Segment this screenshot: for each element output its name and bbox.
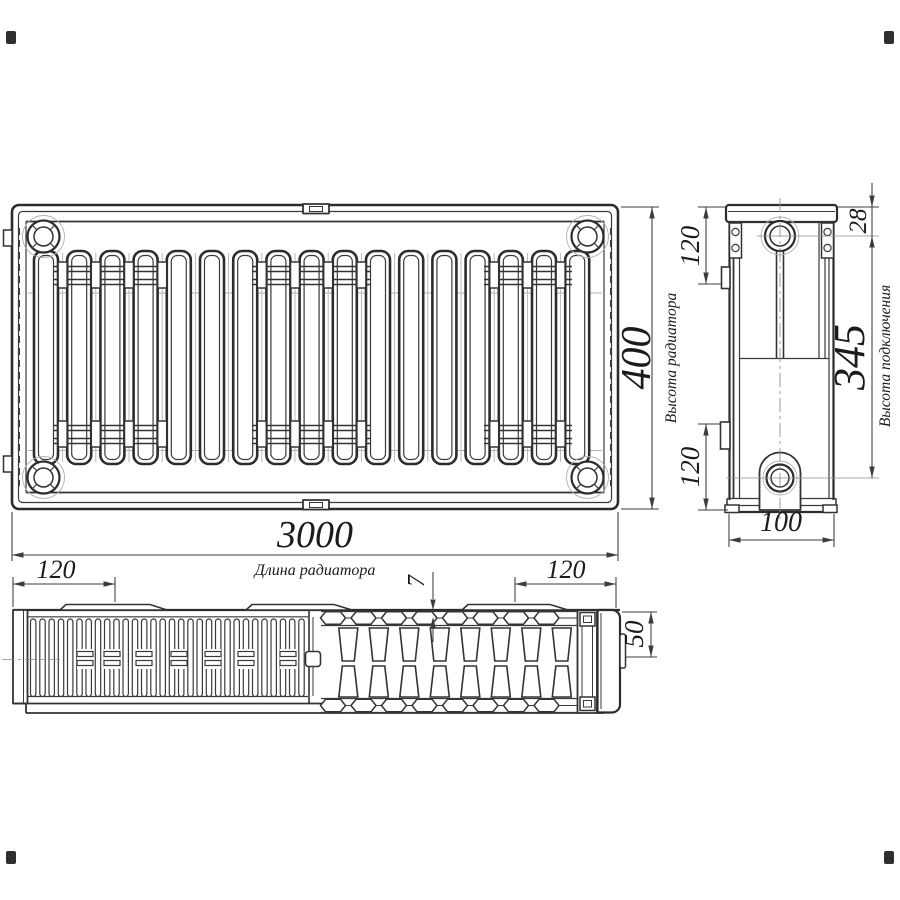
dim-length-value: 3000 bbox=[276, 514, 353, 556]
rib bbox=[499, 251, 523, 464]
dim-length-label: Длина радиатора bbox=[253, 562, 376, 579]
rib bbox=[565, 251, 589, 464]
corner-mark bbox=[6, 851, 16, 864]
convector-top-chain bbox=[321, 612, 578, 626]
dim-mount-right: 120 bbox=[547, 555, 586, 584]
rib bbox=[167, 251, 191, 464]
mount-brackets bbox=[60, 605, 568, 611]
corner-mark bbox=[884, 851, 894, 864]
rib bbox=[333, 251, 357, 464]
technical-drawing-page: 3000 Длина радиатора 400 Высота радиатор… bbox=[0, 0, 900, 900]
junction-clip bbox=[306, 652, 321, 667]
rib bbox=[300, 251, 324, 464]
dim-side-bracket-top: 120 bbox=[675, 225, 705, 266]
rib bbox=[532, 251, 556, 464]
front-ribs bbox=[34, 251, 589, 464]
dim-side-bracket-bottom: 120 bbox=[675, 446, 705, 487]
side-top-cap bbox=[726, 205, 837, 222]
dim-height-label: Высота радиатора bbox=[663, 293, 680, 424]
rib bbox=[134, 251, 158, 464]
rib bbox=[34, 251, 58, 464]
rib bbox=[200, 251, 224, 464]
rib bbox=[432, 251, 456, 464]
rib bbox=[366, 251, 390, 464]
corner-port bbox=[23, 216, 65, 258]
hanger-bracket-left bbox=[730, 223, 742, 258]
dim-grille-gap: 7 bbox=[404, 574, 430, 587]
rib bbox=[399, 251, 423, 464]
corner-port bbox=[23, 457, 65, 499]
rib bbox=[266, 251, 290, 464]
dim-height-value: 400 bbox=[614, 327, 660, 390]
corner-port bbox=[567, 216, 609, 258]
convector-bottom-chain bbox=[321, 699, 578, 713]
rib bbox=[233, 251, 257, 464]
corner-mark bbox=[884, 31, 894, 44]
corner-mark bbox=[6, 31, 16, 44]
rib bbox=[67, 251, 91, 464]
dim-connection-height-value: 345 bbox=[825, 324, 874, 391]
dim-mount-left: 120 bbox=[37, 555, 76, 584]
corner-port bbox=[567, 457, 609, 499]
dim-convector-depth: 50 bbox=[619, 620, 649, 648]
left-end-cap bbox=[13, 610, 28, 704]
dim-connection-height-label: Высота подключения bbox=[877, 285, 894, 427]
radiator-drawing: 3000 Длина радиатора 400 Высота радиатор… bbox=[0, 0, 900, 900]
hanger-bracket-right bbox=[822, 223, 834, 258]
dim-top-port-offset: 28 bbox=[845, 208, 872, 234]
rib bbox=[100, 251, 124, 464]
rib bbox=[466, 251, 490, 464]
dim-depth: 100 bbox=[760, 507, 802, 538]
